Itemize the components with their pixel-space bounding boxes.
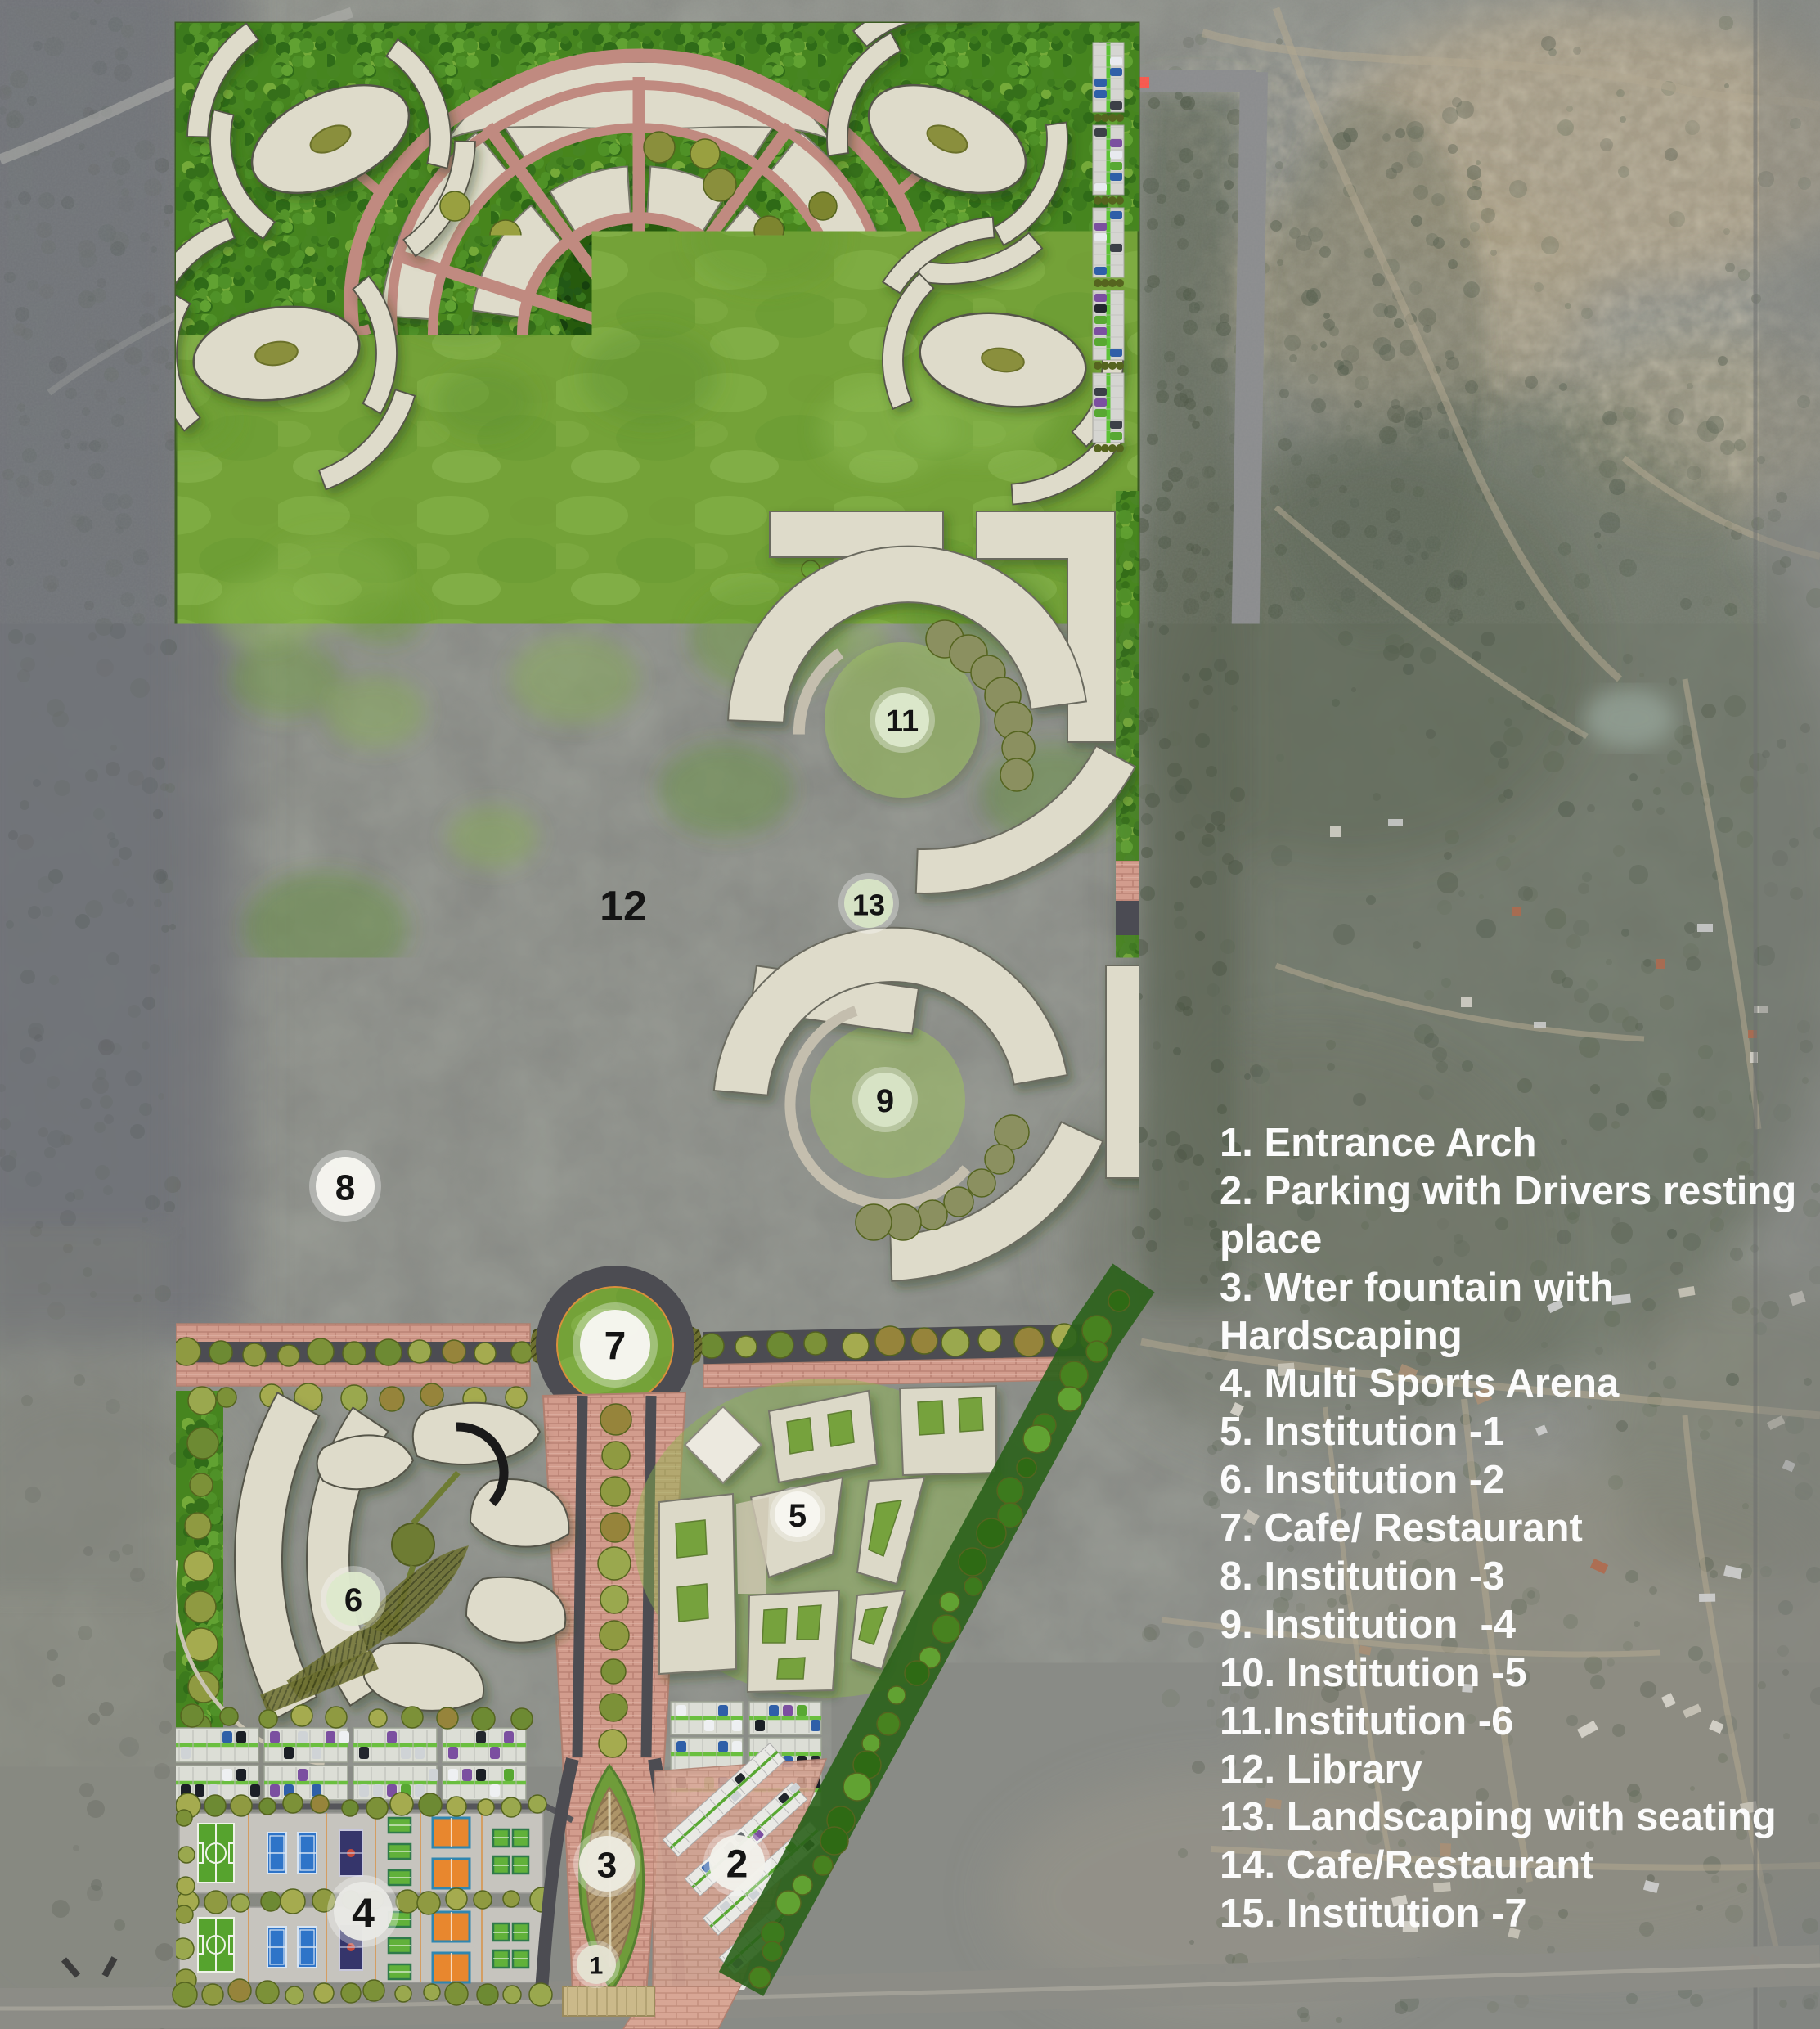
- svg-text:3. Wter fountain with: 3. Wter fountain with: [1220, 1266, 1614, 1310]
- svg-text:8. Institution -3: 8. Institution -3: [1220, 1554, 1504, 1599]
- svg-text:7. Cafe/ Restaurant: 7. Cafe/ Restaurant: [1220, 1506, 1583, 1550]
- svg-text:13: 13: [852, 889, 885, 922]
- svg-text:9. Institution -4: 9. Institution -4: [1220, 1603, 1516, 1647]
- svg-text:2. Parking with Drivers restin: 2. Parking with Drivers resting: [1220, 1169, 1796, 1213]
- svg-text:6: 6: [344, 1582, 362, 1618]
- svg-text:15. Institution -7: 15. Institution -7: [1220, 1892, 1527, 1936]
- svg-text:place: place: [1220, 1217, 1322, 1262]
- svg-text:3: 3: [597, 1846, 617, 1886]
- svg-text:11: 11: [886, 704, 919, 739]
- svg-text:14. Cafe/Restaurant: 14. Cafe/Restaurant: [1220, 1843, 1594, 1887]
- svg-text:5. Institution -1: 5. Institution -1: [1220, 1410, 1504, 1454]
- svg-text:9: 9: [876, 1083, 894, 1119]
- svg-text:10. Institution -5: 10. Institution -5: [1220, 1651, 1527, 1695]
- svg-text:10: 10: [332, 615, 369, 651]
- svg-text:13. Landscaping with seating: 13. Landscaping with seating: [1220, 1795, 1777, 1839]
- svg-text:6. Institution -2: 6. Institution -2: [1220, 1458, 1504, 1502]
- svg-text:8: 8: [335, 1168, 355, 1208]
- svg-text:4. Multi Sports Arena: 4. Multi Sports Arena: [1220, 1361, 1620, 1406]
- svg-text:7: 7: [604, 1325, 627, 1369]
- svg-text:12. Library: 12. Library: [1220, 1748, 1422, 1792]
- svg-text:5: 5: [789, 1498, 807, 1534]
- svg-text:2: 2: [726, 1843, 748, 1887]
- svg-text:11.Institution -6: 11.Institution -6: [1220, 1699, 1513, 1743]
- svg-text:4: 4: [352, 1890, 375, 1936]
- svg-text:14: 14: [618, 465, 660, 507]
- svg-text:12: 12: [600, 883, 647, 930]
- svg-text:15: 15: [618, 317, 659, 360]
- svg-text:Hardscaping: Hardscaping: [1220, 1314, 1463, 1358]
- svg-text:1: 1: [590, 1953, 604, 1980]
- svg-text:1. Entrance Arch: 1. Entrance Arch: [1220, 1121, 1537, 1165]
